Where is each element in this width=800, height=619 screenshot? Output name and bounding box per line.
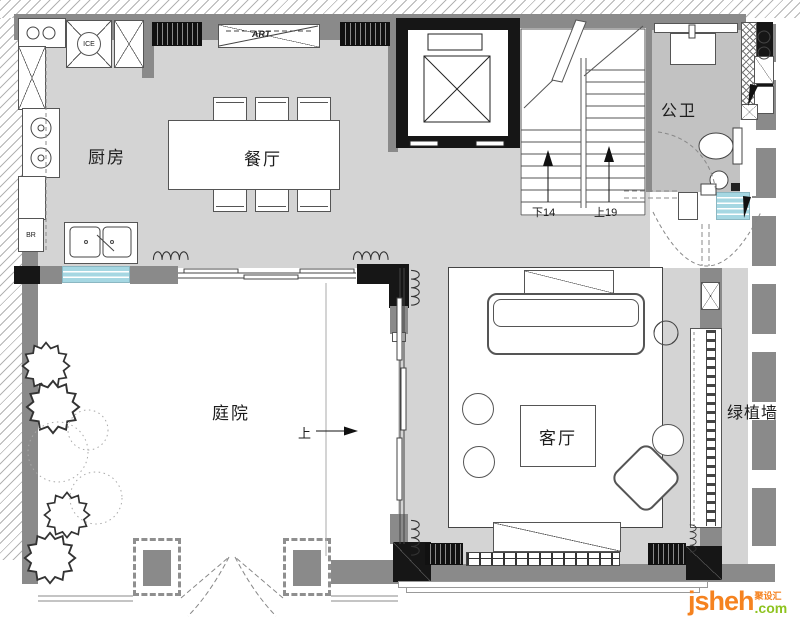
- step-outline: [406, 587, 700, 593]
- gate-column-core: [143, 550, 171, 586]
- courtyard-label: 庭院: [212, 399, 250, 424]
- wall-bottom-left: [322, 560, 398, 584]
- window-gap: [752, 266, 776, 284]
- ottoman: [462, 393, 494, 425]
- gate-column-core: [293, 550, 321, 586]
- tree-icon: [45, 493, 90, 538]
- elevator-cab: [408, 30, 508, 136]
- console-top: [524, 270, 614, 294]
- wall-stub: [40, 266, 62, 284]
- site-logo-name: jsheh: [688, 588, 754, 615]
- window-gap: [752, 470, 776, 488]
- ottoman: [463, 446, 495, 478]
- wall-stub: [130, 266, 178, 284]
- stairs-up-label: 上19: [594, 204, 617, 220]
- sofa: [487, 293, 645, 355]
- living-label: 客厅: [520, 405, 596, 467]
- vanity-sink: [670, 33, 716, 65]
- wall-stub: [390, 306, 408, 334]
- corner-counter: [18, 18, 66, 48]
- plant-wall-label: 绿植墙: [727, 399, 778, 423]
- dining-cabinet-left: [152, 22, 202, 46]
- courtyard-up-label: 上: [298, 423, 311, 442]
- art-label: ART: [251, 29, 271, 39]
- shaft-symbol: [701, 282, 720, 310]
- console-bottom: [493, 522, 621, 552]
- window-frame-block: [425, 543, 463, 565]
- stairwell: [520, 28, 646, 216]
- bath-label: 公卫: [661, 97, 697, 121]
- shelf-box: [754, 56, 774, 84]
- plant-wall-ticks: [706, 330, 716, 526]
- shrub-icon: [68, 410, 108, 450]
- kitchen-cabinet: [114, 20, 144, 68]
- corner-column-se-living: [686, 546, 722, 580]
- fridge-label: ICE: [77, 32, 101, 56]
- low-window-band: [466, 552, 620, 566]
- window-gap: [752, 198, 776, 216]
- corner-column-l: [389, 264, 409, 308]
- floor-plan: ICE BR ART: [0, 0, 800, 619]
- site-logo-tld: .com: [755, 601, 788, 615]
- vanity-counter: [654, 23, 738, 33]
- shrub-icon: [70, 472, 122, 524]
- kitchen-tall-cabinet: [18, 46, 46, 110]
- window-frame-block: [648, 543, 686, 565]
- shaft-symbol: [741, 104, 758, 120]
- kitchen-label: 厨房: [88, 143, 126, 168]
- dining-cabinet-right: [340, 22, 390, 46]
- stairs-down-label: 下14: [532, 204, 555, 220]
- appliance-br: BR: [18, 218, 44, 252]
- kitchen-sink-counter: [64, 222, 138, 264]
- site-logo: jsheh 聚设汇 .com: [688, 588, 787, 615]
- site-logo-right: 聚设汇 .com: [755, 592, 788, 615]
- bath-side-strip: [740, 120, 756, 196]
- kitchen-counter-low: [18, 176, 46, 220]
- entry-door-leaf: [678, 192, 698, 220]
- corner-column-sw-kitchen: [14, 266, 40, 284]
- dining-label: 餐厅: [244, 145, 282, 170]
- window-gap: [752, 334, 776, 352]
- entry-window: [716, 192, 750, 220]
- wall-stub: [390, 514, 408, 544]
- slider-end: [392, 332, 406, 342]
- stove: [22, 108, 60, 178]
- kitchen-window: [62, 266, 130, 283]
